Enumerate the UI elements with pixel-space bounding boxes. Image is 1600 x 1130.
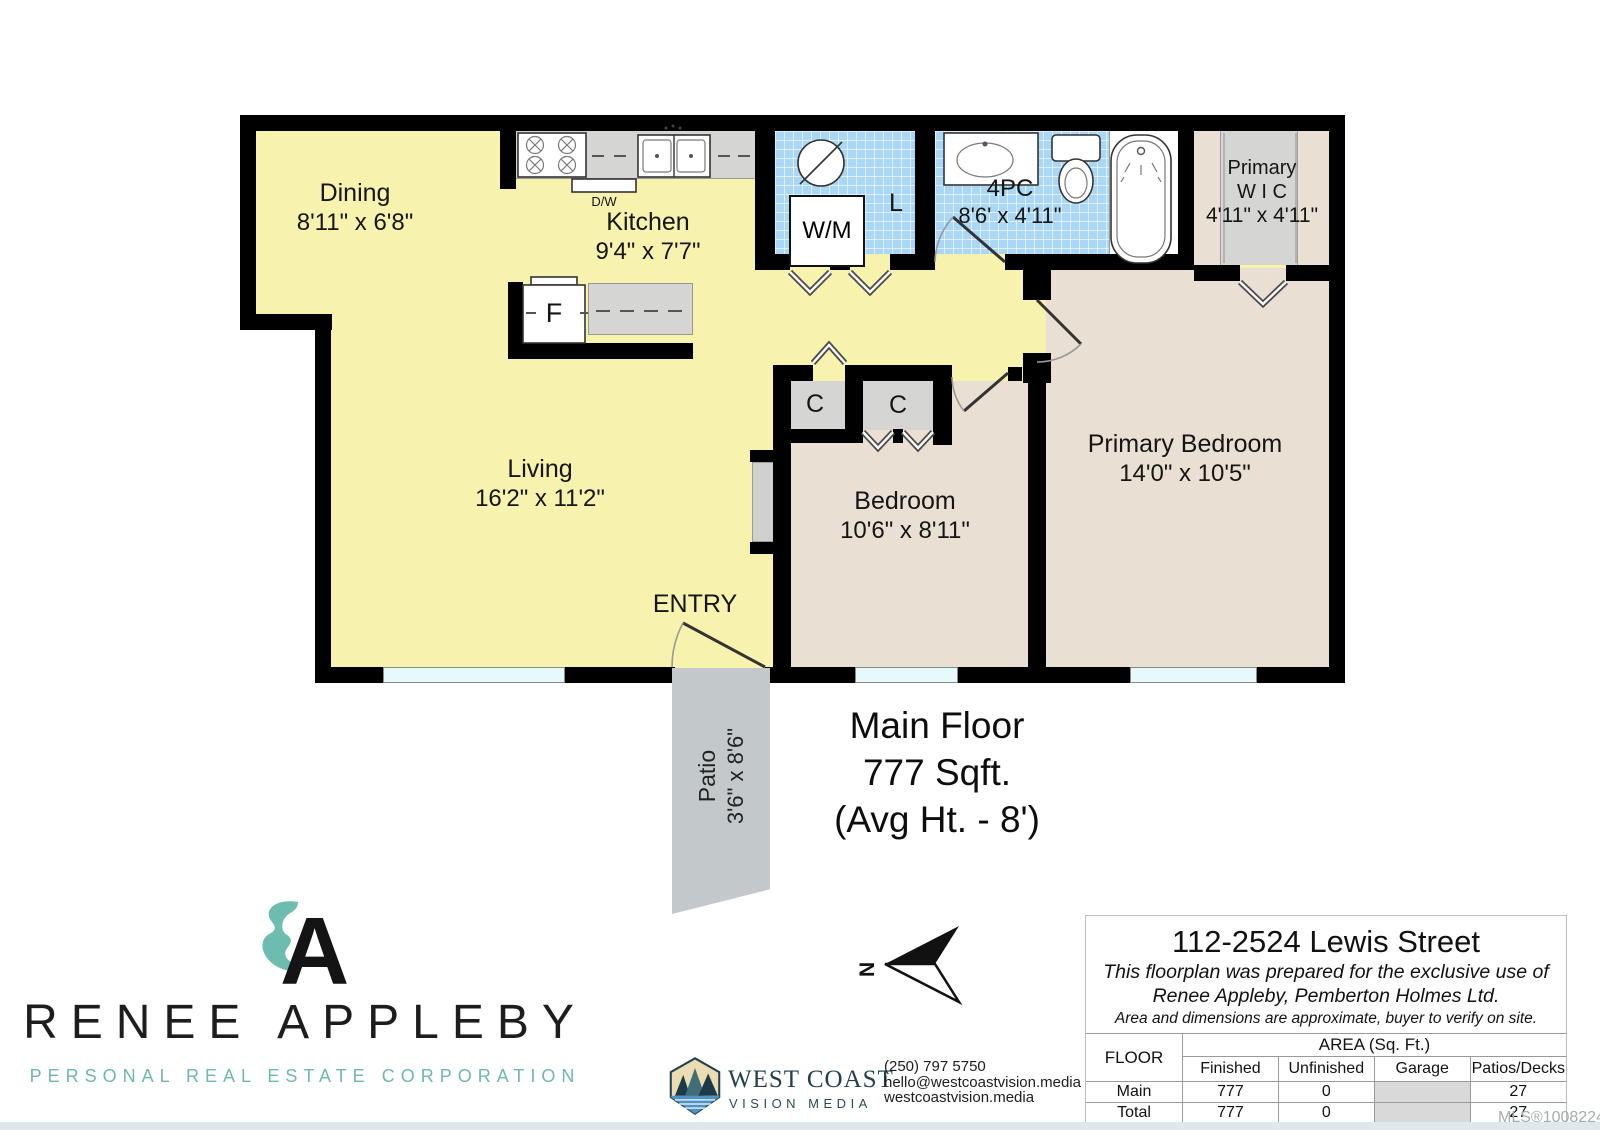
wall: [1028, 383, 1046, 667]
cell-garage: [1374, 1082, 1470, 1103]
media-subtitle: VISION MEDIA: [729, 1096, 872, 1111]
fridge-label: F: [523, 298, 585, 330]
wall: [1257, 667, 1345, 683]
wall: [755, 254, 790, 270]
wall: [508, 343, 693, 359]
bath-label: 4PC 8'6' x 4'11": [915, 175, 1105, 229]
compass-n-glyph: N: [856, 962, 879, 977]
address-title: 112-2524 Lewis Street: [1086, 924, 1566, 960]
primary-bedroom-label: Primary Bedroom 14'0" x 10'5": [1040, 430, 1330, 488]
floor-summary: Main Floor 777 Sqft. (Avg Ht. - 8'): [712, 702, 1162, 852]
media-phone: (250) 797 5750: [884, 1059, 1081, 1075]
cell-unfinished: 0: [1278, 1082, 1374, 1103]
cell-finished: 777: [1183, 1082, 1279, 1103]
cell-floor: Total: [1086, 1103, 1183, 1124]
wall: [500, 131, 516, 189]
entry-door: [672, 623, 765, 667]
wall: [315, 314, 331, 683]
wall: [1008, 367, 1022, 381]
washer-box: W/M: [789, 195, 865, 267]
disclaimer-line1: This floorplan was prepared for the excl…: [1086, 960, 1566, 984]
kitchen-counter: [516, 131, 755, 179]
compass-icon: N: [855, 922, 975, 1007]
wall: [958, 667, 1130, 683]
agent-logo: A RENEE APPLEBY PERSONAL REAL ESTATE COR…: [10, 896, 600, 1087]
agent-monogram-icon: A: [250, 896, 360, 988]
media-website: westcoastvision.media: [884, 1090, 1081, 1106]
media-email: hello@westcoastvision.media: [884, 1075, 1081, 1091]
wall: [755, 131, 775, 270]
area-header-cell: AREA (Sq. Ft.): [1183, 1034, 1567, 1057]
wall: [1286, 265, 1329, 281]
wall: [565, 667, 675, 683]
kitchen-label: Kitchen 9'4" x 7'7": [558, 208, 738, 266]
area-table: FLOOR AREA (Sq. Ft.) Finished Unfinished…: [1086, 1033, 1566, 1123]
floor-header-cell: FLOOR: [1086, 1034, 1183, 1082]
wall: [240, 115, 256, 330]
col-header-unfinished: Unfinished: [1278, 1057, 1374, 1082]
pocket-door: [752, 462, 775, 542]
cell-floor: Main: [1086, 1082, 1183, 1103]
wall: [750, 542, 775, 554]
disclaimer-line2: Renee Appleby, Pemberton Holmes Ltd.: [1086, 984, 1566, 1008]
footer-strip: [0, 1122, 1600, 1130]
dishwasher-label: D/W: [570, 194, 638, 209]
floorplan: Dining 8'11" x 6'8" Kitchen 9'4" x 7'7" …: [240, 115, 1345, 683]
cell-unfinished: 0: [1278, 1103, 1374, 1124]
dining-label: Dining 8'11" x 6'8": [265, 179, 445, 237]
wall: [750, 450, 775, 462]
bedroom-label: Bedroom 10'6" x 8'11": [795, 487, 1015, 545]
cell-garage: [1374, 1103, 1470, 1124]
wall: [1023, 268, 1051, 300]
table-row: Main 777 0 27: [1086, 1082, 1566, 1103]
tub-alcove: [1109, 131, 1178, 254]
svg-text:A: A: [280, 898, 349, 988]
living-label: Living 16'2" x 11'2": [440, 455, 640, 513]
floorplan-page: Dining 8'11" x 6'8" Kitchen 9'4" x 7'7" …: [0, 0, 1600, 1130]
wall: [1023, 353, 1051, 383]
closet-right-label: C: [863, 391, 933, 421]
wall: [893, 429, 903, 443]
media-badge-icon: [668, 1056, 722, 1116]
cell-finished: 777: [1183, 1103, 1279, 1124]
dishwasher-icon: [572, 179, 636, 192]
closet-left-label: C: [785, 390, 845, 420]
table-row: Total 777 0 27: [1086, 1103, 1566, 1124]
media-contact: (250) 797 5750 hello@westcoastvision.med…: [884, 1059, 1081, 1106]
wall: [240, 115, 1345, 131]
entry-label: ENTRY: [635, 590, 755, 620]
col-header-garage: Garage: [1374, 1057, 1470, 1082]
island-counter: [588, 283, 693, 335]
media-name: WEST COAST: [728, 1066, 894, 1094]
wall: [315, 667, 383, 683]
wall: [890, 254, 935, 270]
media-logo: WEST COAST VISION MEDIA (250) 797 5750 h…: [668, 1054, 1088, 1118]
wall: [1194, 265, 1240, 281]
laundry-bifold-doors: [790, 272, 890, 292]
agent-tagline: PERSONAL REAL ESTATE CORPORATION: [10, 1066, 600, 1087]
living-window: [383, 667, 565, 683]
disclaimer-line3: Area and dimensions are approximate, buy…: [1086, 1010, 1566, 1028]
agent-name: RENEE APPLEBY: [10, 995, 600, 1050]
cell-patios: 27: [1470, 1082, 1566, 1103]
wall: [933, 365, 952, 445]
info-box: 112-2524 Lewis Street This floorplan was…: [1085, 915, 1567, 1124]
outside-mask: [240, 330, 315, 683]
closet-left-bifold: [813, 345, 845, 363]
wall: [845, 365, 863, 435]
wic-label: Primary W I C 4'11" x 4'11": [1192, 157, 1332, 229]
col-header-patios: Patios/Decks: [1470, 1057, 1566, 1082]
col-header-finished: Finished: [1183, 1057, 1279, 1082]
laundry-label: L: [876, 189, 916, 219]
primary-window: [1130, 667, 1257, 683]
compass: N: [855, 922, 975, 1012]
wall: [765, 667, 855, 683]
bedroom-window: [855, 667, 958, 683]
